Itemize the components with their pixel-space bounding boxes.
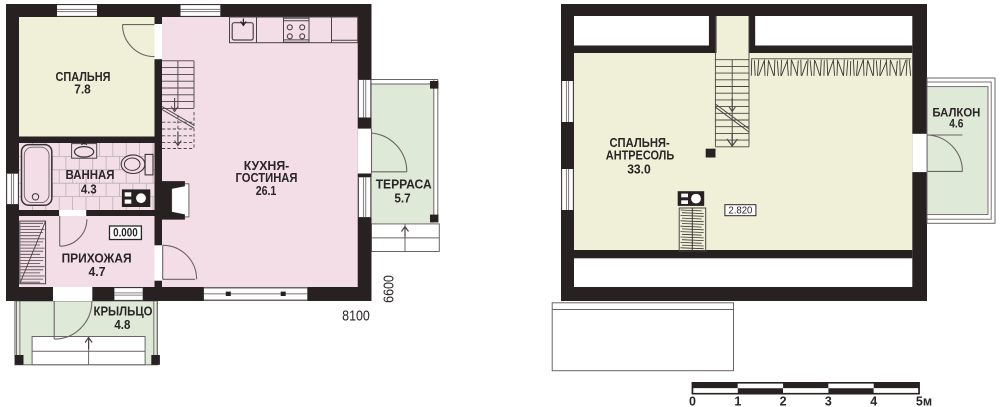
svg-text:ВАННАЯ: ВАННАЯ bbox=[66, 168, 115, 182]
svg-text:4.6: 4.6 bbox=[949, 117, 963, 131]
svg-text:6600: 6600 bbox=[380, 275, 397, 303]
svg-text:4.8: 4.8 bbox=[114, 318, 130, 332]
svg-text:4.3: 4.3 bbox=[81, 182, 97, 196]
svg-text:7.8: 7.8 bbox=[74, 83, 91, 97]
svg-text:АНТРЕСОЛЬ: АНТРЕСОЛЬ bbox=[606, 149, 674, 163]
svg-text:2.820: 2.820 bbox=[728, 205, 752, 217]
svg-text:ПРИХОЖАЯ: ПРИХОЖАЯ bbox=[62, 252, 132, 266]
svg-text:5м: 5м bbox=[916, 395, 932, 407]
svg-text:1: 1 bbox=[734, 395, 741, 407]
svg-text:2: 2 bbox=[780, 395, 787, 407]
svg-text:КРЫЛЬЦО: КРЫЛЬЦО bbox=[94, 304, 153, 318]
svg-text:4.7: 4.7 bbox=[89, 265, 106, 279]
svg-text:3: 3 bbox=[825, 395, 832, 407]
svg-text:0.000: 0.000 bbox=[113, 228, 138, 240]
svg-text:8100: 8100 bbox=[342, 307, 370, 324]
svg-text:ТЕРРАСА: ТЕРРАСА bbox=[376, 177, 432, 191]
svg-text:33.0: 33.0 bbox=[627, 162, 651, 176]
svg-text:0: 0 bbox=[689, 395, 696, 407]
svg-text:5.7: 5.7 bbox=[394, 191, 410, 205]
svg-text:26.1: 26.1 bbox=[256, 184, 277, 198]
svg-text:4: 4 bbox=[870, 395, 877, 407]
